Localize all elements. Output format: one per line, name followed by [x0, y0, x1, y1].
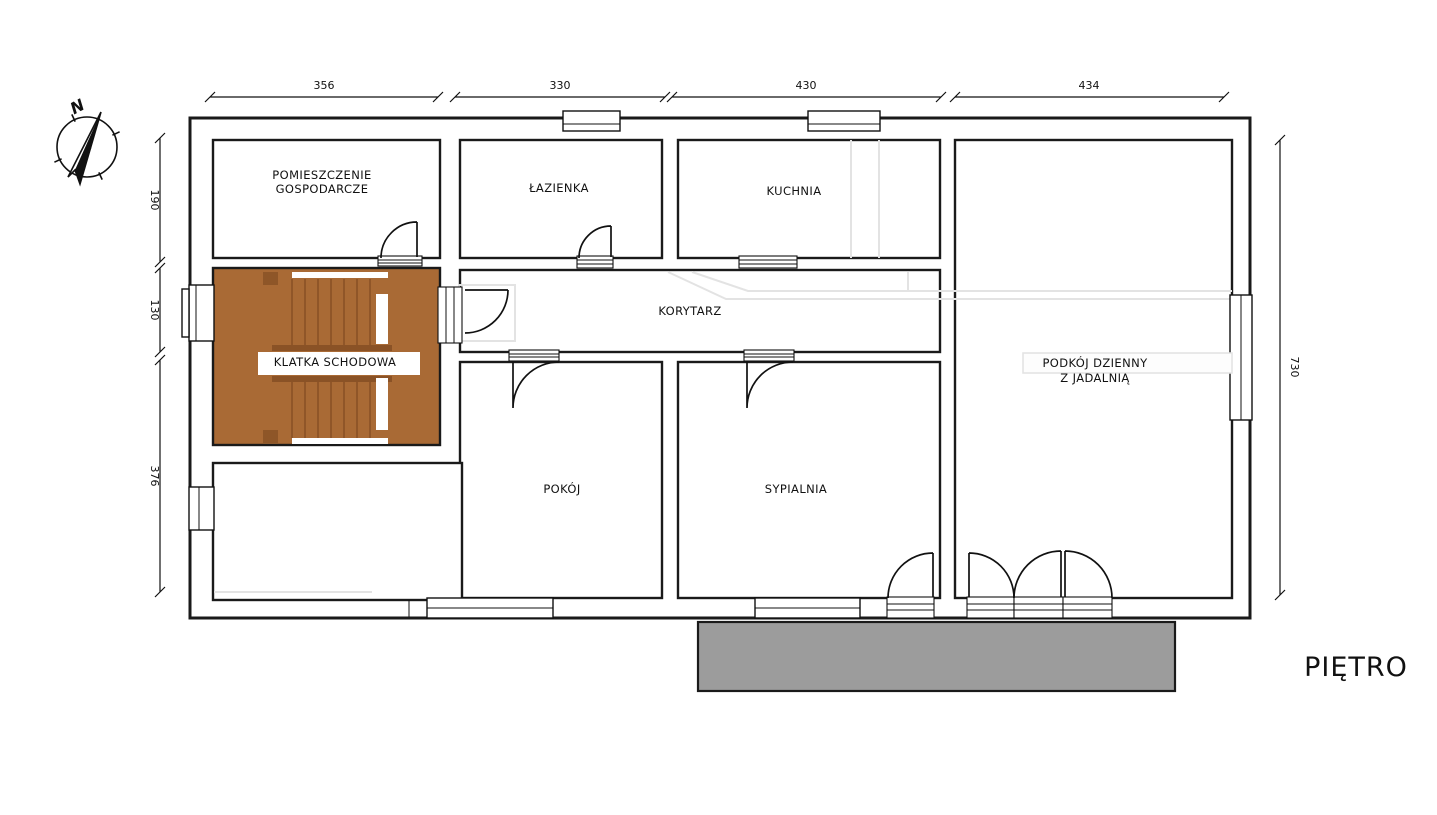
window-top-kitchen — [808, 111, 880, 131]
staircase-label: KLATKA SCHODOWA — [274, 355, 397, 369]
floor-plan-page: N 356 330 430 434 190 130 376 — [0, 0, 1437, 815]
bathroom-label: ŁAZIENKA — [528, 181, 589, 195]
room-small — [460, 362, 662, 598]
dim-top-3: 430 — [667, 79, 946, 102]
compass: N — [54, 95, 119, 184]
compass-center-dot — [87, 146, 91, 150]
dim-value: 356 — [314, 79, 335, 92]
dim-top-2: 330 — [450, 79, 670, 102]
door-threshold — [967, 597, 1014, 618]
door-threshold — [744, 350, 794, 361]
door-threshold — [887, 597, 934, 618]
window-left-staircase-sill — [182, 289, 189, 337]
stair-landing-edge-bottom — [272, 376, 392, 382]
dim-line — [667, 92, 946, 102]
living-label-line2: Z JADALNIĄ — [1060, 371, 1130, 385]
room-bottom-left — [213, 463, 462, 600]
dim-line — [450, 92, 670, 102]
small-room-label: POKÓJ — [543, 481, 580, 496]
dim-value: 330 — [550, 79, 571, 92]
door-jamb — [438, 287, 462, 343]
dim-line — [1275, 135, 1285, 600]
dim-top-1: 356 — [205, 79, 443, 102]
compass-north-label: N — [67, 95, 88, 118]
dim-line — [950, 92, 1229, 102]
stair-well-gap-upper — [376, 294, 388, 344]
stair-well-gap-lower — [376, 378, 388, 430]
door-threshold-right — [1063, 597, 1112, 618]
dim-line — [205, 92, 443, 102]
door-threshold-left — [1014, 597, 1063, 618]
kitchen-label: KUCHNIA — [767, 184, 822, 198]
window-top-bathroom — [563, 111, 620, 131]
dim-value: 434 — [1079, 79, 1100, 92]
door-threshold — [577, 256, 613, 268]
dim-value: 730 — [1288, 357, 1301, 378]
stair-landing-edge-top — [272, 345, 392, 351]
dim-value: 190 — [148, 190, 161, 211]
dim-top-4: 434 — [950, 79, 1229, 102]
room-bedroom — [678, 362, 940, 598]
room-utility — [213, 140, 440, 258]
utility-label-line2: GOSPODARCZE — [276, 182, 369, 196]
floor-plan-canvas: N 356 330 430 434 190 130 376 — [0, 0, 1437, 815]
door-kitchen-opening — [739, 256, 797, 268]
door-threshold — [739, 256, 797, 268]
dim-value: 130 — [148, 300, 161, 321]
dim-left-2: 130 — [148, 263, 165, 357]
dim-left-3: 376 — [148, 355, 165, 597]
stair-post-top — [263, 272, 278, 285]
floor-title: PIĘTRO — [1304, 652, 1408, 683]
dim-value: 430 — [796, 79, 817, 92]
dim-right-1: 730 — [1275, 135, 1301, 600]
door-threshold — [509, 350, 559, 361]
balcony — [698, 622, 1175, 691]
stair-gap-top — [292, 272, 388, 278]
window-left-staircase — [189, 285, 214, 341]
bedroom-label: SYPIALNIA — [765, 482, 827, 496]
dim-value: 376 — [148, 466, 161, 487]
door-threshold — [378, 256, 422, 266]
stair-post-bottom — [263, 430, 278, 443]
room-bathroom — [460, 140, 662, 258]
stair-gap-bottom — [292, 438, 388, 444]
living-label-line1: PODKÓJ DZIENNY — [1042, 355, 1148, 370]
utility-label-line1: POMIESZCZENIE — [272, 168, 371, 182]
corridor-label: KORYTARZ — [658, 304, 721, 318]
room-kitchen — [678, 140, 940, 258]
staircase: KLATKA SCHODOWA — [213, 268, 440, 445]
dim-left-1: 190 — [148, 133, 165, 267]
window-left-lower — [189, 487, 214, 530]
